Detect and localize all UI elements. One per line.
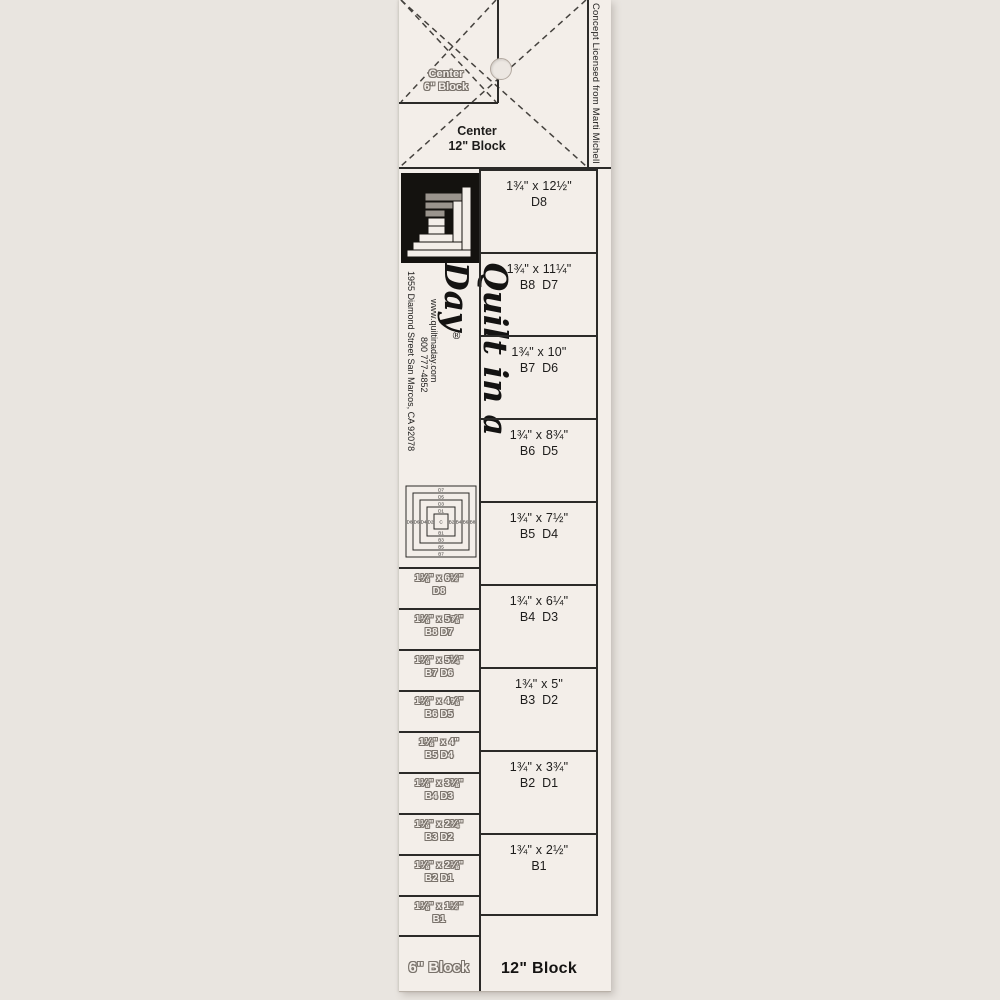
svg-text:B5: B5 [438,544,444,549]
log-cabin-logo-icon [401,173,479,263]
center-6-block-label: Center 6" Block [406,68,486,94]
address-text: 1955 Diamond Street San Marcos, CA 92078 [406,271,416,471]
quilt-log-cabin-ruler: Center 6" Block Center 12" Block Concept… [399,0,611,992]
center-6-line2: 6" Block [406,81,486,94]
twelve-block-cell: 1¾" x 10" B7 D6 [481,335,597,418]
twelve-block-cell: 1¾" x 2½" B1 [481,833,597,916]
twelve-block-cell: 1¾" x 8¾" B6 D5 [481,418,597,501]
center-12-line2: 12" Block [427,139,527,154]
svg-text:D8: D8 [407,519,413,524]
six-block-cell: 1⅛" x 3⅜" B4 D3 [399,772,479,813]
six-block-cell: 1⅛" x 1½" B1 [399,895,479,937]
twelve-block-cell: 1¾" x 7½" B5 D4 [481,501,597,584]
center-12-block-label: Center 12" Block [427,124,527,154]
six-block-cell: 1⅛" x 2⅛" B2 D1 [399,854,479,895]
svg-text:D7: D7 [438,488,444,493]
license-text: Concept Licensed from Marti Michell [590,3,601,167]
six-block-cell: 1⅛" x 4" B5 D4 [399,731,479,772]
six-block-cell: 1⅛" x 6½" D8 [399,567,479,608]
svg-text:B3: B3 [438,537,444,542]
svg-text:B4: B4 [456,519,462,524]
registered-mark: ® [451,331,462,342]
twelve-block-footer-label: 12" Block [481,960,597,978]
twelve-block-cell: 1¾" x 12½" D8 [481,169,597,252]
svg-text:D6: D6 [414,519,420,524]
phone-text: 800 777-4852 [419,337,429,417]
hanging-hole [490,58,512,80]
center-12-line1: Center [427,124,527,139]
six-block-footer-label: 6" Block [399,960,479,976]
svg-text:B1: B1 [438,530,444,535]
svg-text:D5: D5 [438,495,444,500]
center-6-line1: Center [406,68,486,81]
svg-text:D4: D4 [421,519,427,524]
twelve-block-cell: 1¾" x 5" B3 D2 [481,667,597,750]
six-block-cell: 1⅛" x 4⅝" B6 D5 [399,690,479,731]
svg-text:D3: D3 [438,502,444,507]
svg-text:B6: B6 [463,519,469,524]
svg-text:B7: B7 [438,551,444,556]
photo-background: Center 6" Block Center 12" Block Concept… [0,0,1000,1000]
svg-text:B2: B2 [449,519,455,524]
twelve-block-cell: 1¾" x 6¼" B4 D3 [481,584,597,667]
twelve-block-cell: 1¾" x 11¼" B8 D7 [481,252,597,335]
svg-text:B8: B8 [470,519,476,524]
six-block-cell: 1⅛" x 2¾" B3 D2 [399,813,479,854]
six-block-cell: 1⅛" x 5¼" B7 D6 [399,649,479,690]
svg-text:D1: D1 [438,509,444,514]
twelve-block-cell: 1¾" x 3¾" B2 D1 [481,750,597,833]
six-block-cell: 1⅛" x 5⅞" B8 D7 [399,608,479,649]
log-cabin-diagram: D7 D5 D3 D1 C B1 B3 B5 B7 D8 D6 D4 D2 B2… [403,483,479,561]
svg-text:D2: D2 [428,519,434,524]
svg-text:C: C [439,519,443,524]
